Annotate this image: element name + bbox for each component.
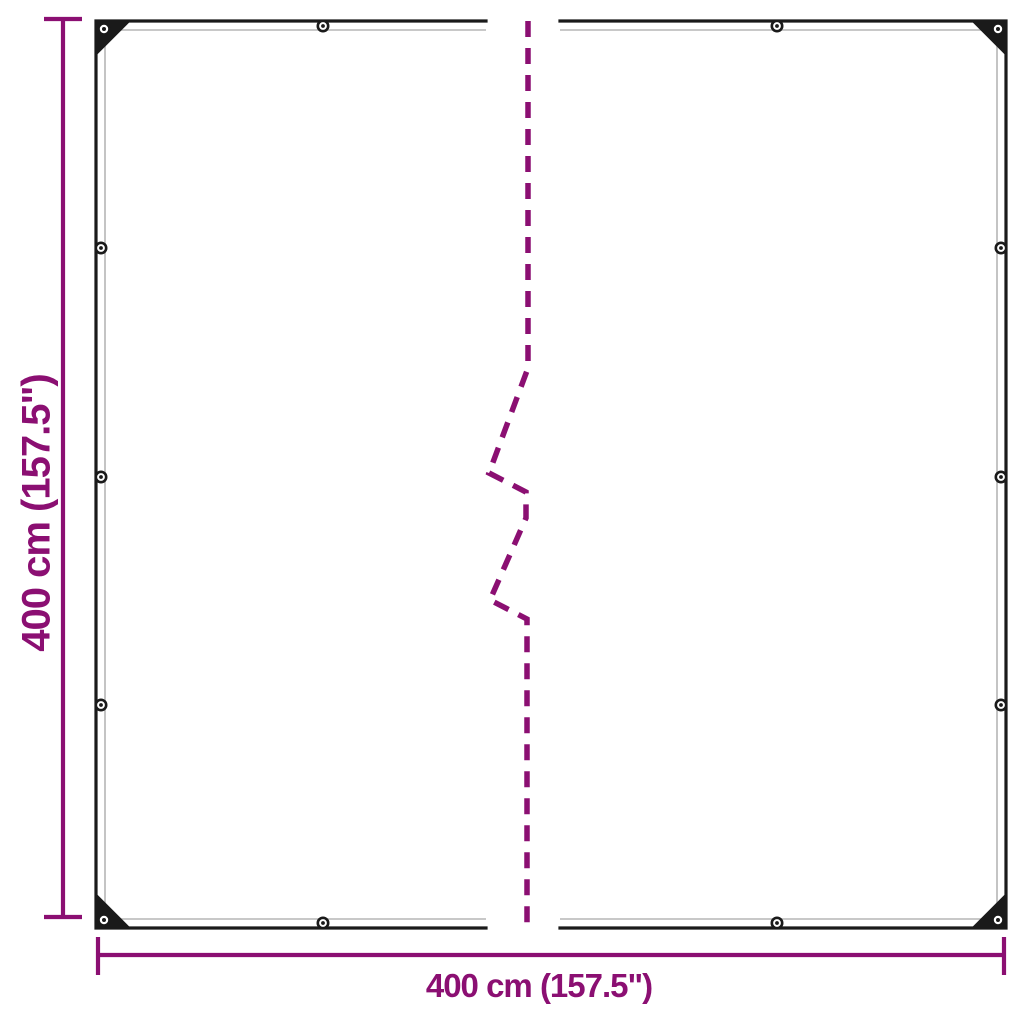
eyelet-icon [772,21,782,31]
eyelet-icon [318,918,328,928]
eyelet-icon [99,24,110,35]
eyelet-icon [996,700,1006,710]
tarp-left-panel-outline [96,21,486,928]
eyelet-icon [96,472,106,482]
eyelet-icon [96,700,106,710]
height-dimension-label: 400 cm (157.5") [15,374,60,651]
eyelet-icon [99,915,110,926]
product-dimension-canvas: 400 cm (157.5") 400 cm (157.5") [0,0,1024,1024]
width-dimension-label: 400 cm (157.5") [426,967,652,1005]
eyelet-icon [996,243,1006,253]
eyelet-icon [96,243,106,253]
tarp-left-panel-hem [105,30,486,919]
eyelet-icon [772,918,782,928]
tarp-right-panel-outline [560,21,1006,928]
tarp-right-panel-hem [560,30,997,919]
eyelet-icon [993,24,1004,35]
eyelet-icon [996,472,1006,482]
tarp-dimension-drawing [0,0,1024,1024]
eyelet-icon [318,21,328,31]
eyelet-icon [993,915,1004,926]
cut-break-line [489,21,528,928]
